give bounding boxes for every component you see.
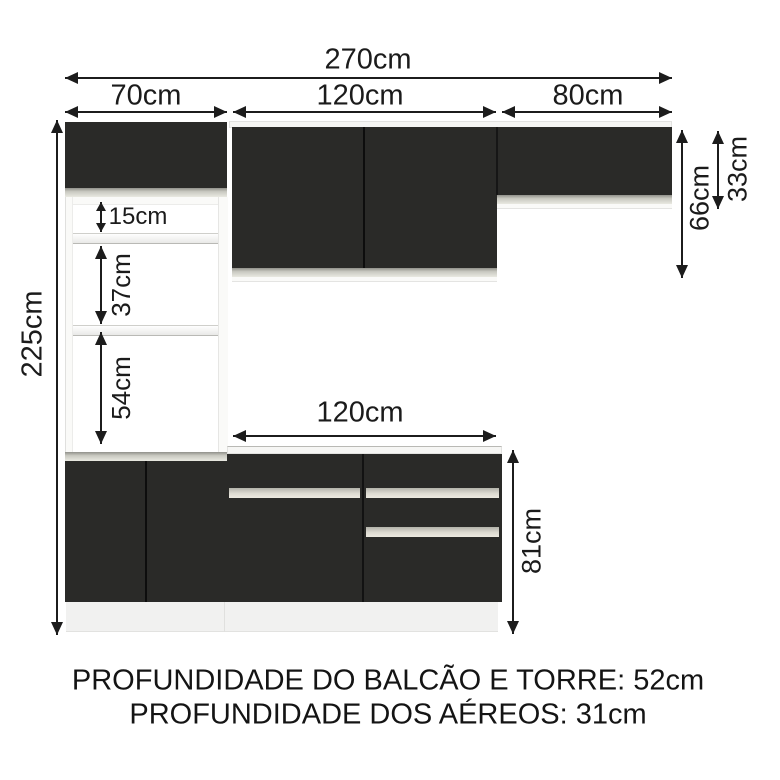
- wall-cabinet-right: [497, 127, 672, 195]
- tower-shelf-upper: [73, 233, 218, 244]
- counter-divider-seam: [362, 454, 364, 602]
- counter-handle-left: [229, 488, 360, 498]
- depth-note-counter-tower: PROFUNDIDADE DO BALCÃO E TORRE: 52cm: [72, 667, 704, 696]
- arrow-niche-bottom: [100, 332, 102, 444]
- wall-cabinet-right-seam: [496, 127, 498, 195]
- wall-cabinet-mid-underside: [232, 277, 497, 282]
- dim-niche-bottom: 54cm: [108, 356, 134, 420]
- dim-wall-height-33: 33cm: [725, 136, 752, 202]
- wall-cabinet-mid-trim: [232, 268, 497, 277]
- wall-cabinet-mid-door-seam: [363, 127, 365, 268]
- plinth-seam: [224, 602, 225, 632]
- dim-wall-mid-width: 120cm: [316, 82, 403, 111]
- arrow-counter-height: [512, 450, 514, 634]
- arrow-niche-top: [100, 202, 102, 232]
- arrow-niche-middle: [100, 246, 102, 324]
- arrow-total-height: [56, 120, 58, 635]
- counter-handle-right-mid: [366, 527, 499, 537]
- dim-total-height: 225cm: [19, 290, 48, 377]
- wall-cabinet-right-underside: [497, 204, 672, 209]
- plinth-base: [66, 602, 498, 632]
- counter-handle-right-top: [366, 488, 499, 498]
- dim-wall-right-width: 80cm: [553, 82, 624, 111]
- dim-niche-middle: 37cm: [108, 253, 134, 317]
- arrow-counter-width: [233, 435, 496, 437]
- tower-base-cabinet-trim: [65, 452, 227, 461]
- dim-total-width: 270cm: [324, 46, 411, 75]
- depth-note-wall-cabinets: PROFUNDIDADE DOS AÉREOS: 31cm: [129, 701, 646, 730]
- tower-left-side-panel: [65, 197, 73, 452]
- arrow-wall-height-66: [681, 130, 683, 278]
- tower-base-door-seam: [145, 461, 147, 602]
- dim-counter-height: 81cm: [519, 508, 546, 574]
- kitchen-dimension-diagram: 270cm 70cm 120cm 80cm 225cm 15cm 37cm 54…: [0, 0, 780, 780]
- dim-niche-top: 15cm: [109, 205, 168, 229]
- tower-top-cabinet-trim: [65, 188, 227, 197]
- countertop: [227, 446, 502, 454]
- dim-counter-width: 120cm: [316, 399, 403, 428]
- tower-top-cabinet: [65, 122, 227, 188]
- dim-wall-height-66: 66cm: [687, 165, 714, 231]
- dim-tower-width: 70cm: [111, 82, 182, 111]
- arrow-wall-height-33: [717, 131, 719, 209]
- wall-cabinet-right-trim: [497, 195, 672, 204]
- tower-right-side-panel: [218, 197, 228, 452]
